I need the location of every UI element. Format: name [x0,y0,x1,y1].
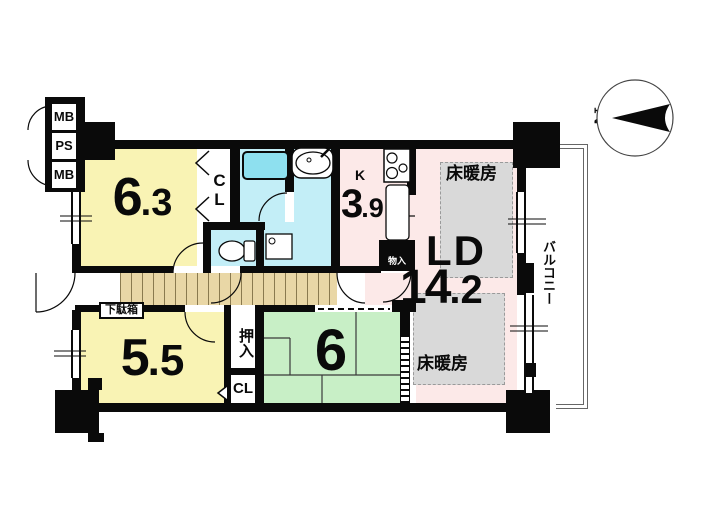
kitchen-label: K [355,168,365,182]
wall [255,305,315,312]
door-arc-living [337,273,365,303]
pillar-bottom-left [55,390,99,433]
wall [72,310,81,330]
wall [517,253,526,295]
sliding-door [400,335,410,403]
balcony-label: バルコニー [539,240,555,320]
wall [407,140,416,195]
sliding-door-track [315,305,392,312]
floor-heating-lower-label: 床暖房 [417,355,468,372]
room-western2-size: 5.5 [85,332,220,384]
corridor-floor [120,273,337,305]
wall [75,140,513,149]
room-japanese-size: 6 [295,322,365,380]
window [524,377,534,393]
pillar-bottom-right [506,390,550,433]
oshiire-label: 押入 [233,318,253,368]
wall [203,222,265,230]
bathroom-floor [240,148,285,222]
window [71,330,81,378]
wall [203,230,211,273]
wall [524,363,536,377]
wall [331,140,340,273]
closet-upper-label: CL [206,160,228,220]
shaft-mb-top: MB [52,104,76,130]
getabako-label: 下駄箱 [105,304,138,316]
wall [224,368,264,375]
living-size: 14.2 [400,264,483,312]
balcony-railing [556,144,588,409]
wall [240,266,331,273]
window [524,295,534,363]
kitchen-size: 3.9 [341,184,384,224]
window [71,192,81,244]
wall [331,266,381,273]
balcony-railing-inner [556,148,584,405]
wall [88,433,104,442]
wall [256,230,264,266]
getabako-box: 下駄箱 [99,302,144,319]
wall [400,312,410,335]
shaft-mb-bottom: MB [52,162,76,188]
wall [285,140,294,192]
door-arc-entrance [36,273,75,312]
shaft-mb-bottom-label: MB [54,167,74,182]
wall [57,403,550,412]
shaft-ps-label: PS [55,138,72,153]
floor-plan: MB PS MB 下駄箱 物入 6.3 5.5 6 K 3.9 LD 14.2 … [0,0,705,525]
pillar-top-right [513,122,560,168]
wall [526,263,534,293]
wall [75,266,173,273]
wall [517,168,526,192]
window [516,192,526,253]
floor-heating-upper-label: 床暖房 [446,165,497,182]
wall [230,140,240,224]
closet-lower-label: CL [228,381,258,396]
room-western1-size: 6.3 [85,170,200,224]
compass-north-arrow [612,104,670,132]
compass-north-label: N [592,105,613,129]
shaft-mb-top-label: MB [54,109,74,124]
shaft-ps: PS [52,133,76,159]
